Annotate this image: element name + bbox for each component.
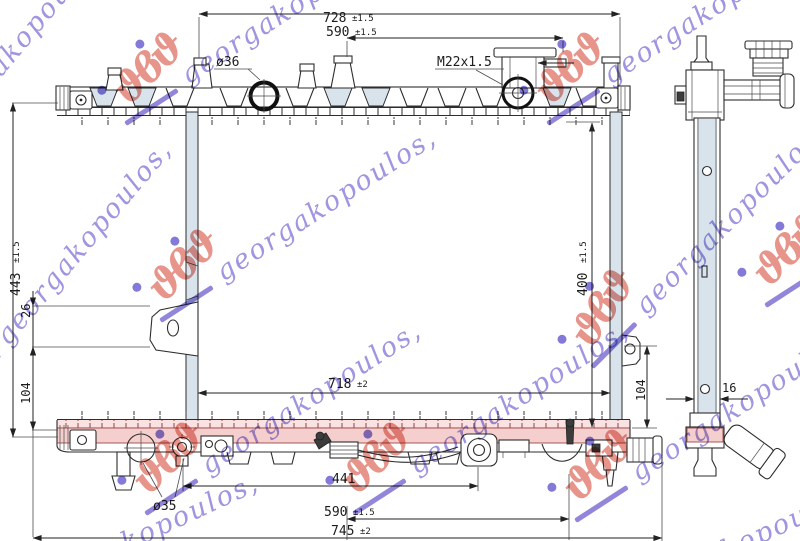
side-view: [675, 36, 794, 480]
pipe-fitting: [461, 434, 497, 466]
dim-left-bracket-offset: 104: [19, 382, 33, 404]
front-view: [56, 48, 662, 490]
dim-core-width: 718: [328, 377, 351, 392]
top-tank: [56, 48, 630, 125]
radiator-drawing-page: 728 ±1.5 590 ±1.5 ø36 M22x1.5 443 ±1.5 2…: [0, 0, 800, 541]
svg-text:±1.5: ±1.5: [12, 241, 22, 263]
svg-text:±2: ±2: [357, 380, 368, 390]
core: [150, 112, 640, 420]
dim-bottom-span-inner: 441: [332, 472, 355, 487]
dim-core-height: 400: [576, 273, 591, 296]
mounting-pin: [602, 57, 620, 88]
dim-side-thickness: 16: [722, 381, 736, 395]
dim-drain-diameter: ø35: [153, 499, 176, 514]
dim-left-bracket-gap: 26: [19, 304, 33, 318]
mounting-pin: [192, 58, 212, 88]
side-outlet-pipe: [719, 419, 787, 481]
dim-overall-height: 443: [9, 273, 24, 296]
svg-text:±1.5: ±1.5: [579, 241, 589, 263]
svg-text:±1.5: ±1.5: [355, 28, 377, 38]
mounting-pin: [331, 56, 355, 88]
svg-text:±1.5: ±1.5: [353, 508, 375, 518]
dim-overall-width: 745: [331, 524, 354, 539]
mounting-pin: [298, 64, 316, 88]
bottom-tank: [57, 411, 662, 490]
dim-top-width: 728: [323, 11, 346, 26]
svg-text:±1.5: ±1.5: [352, 14, 374, 24]
dim-filler-diameter: ø36: [216, 55, 239, 70]
dim-top-span: 590: [326, 25, 349, 40]
dim-bottom-span: 590: [324, 505, 347, 520]
side-cap-inlet: [724, 41, 794, 108]
left-bracket: [150, 302, 198, 356]
radiator-technical-drawing: 728 ±1.5 590 ±1.5 ø36 M22x1.5 443 ±1.5 2…: [0, 0, 800, 541]
outlet-pipe: [627, 436, 662, 464]
dim-right-bracket-offset: 104: [634, 379, 648, 401]
mounting-pin: [106, 68, 123, 90]
svg-text:±2: ±2: [360, 527, 371, 537]
dim-cap-thread: M22x1.5: [437, 55, 492, 70]
